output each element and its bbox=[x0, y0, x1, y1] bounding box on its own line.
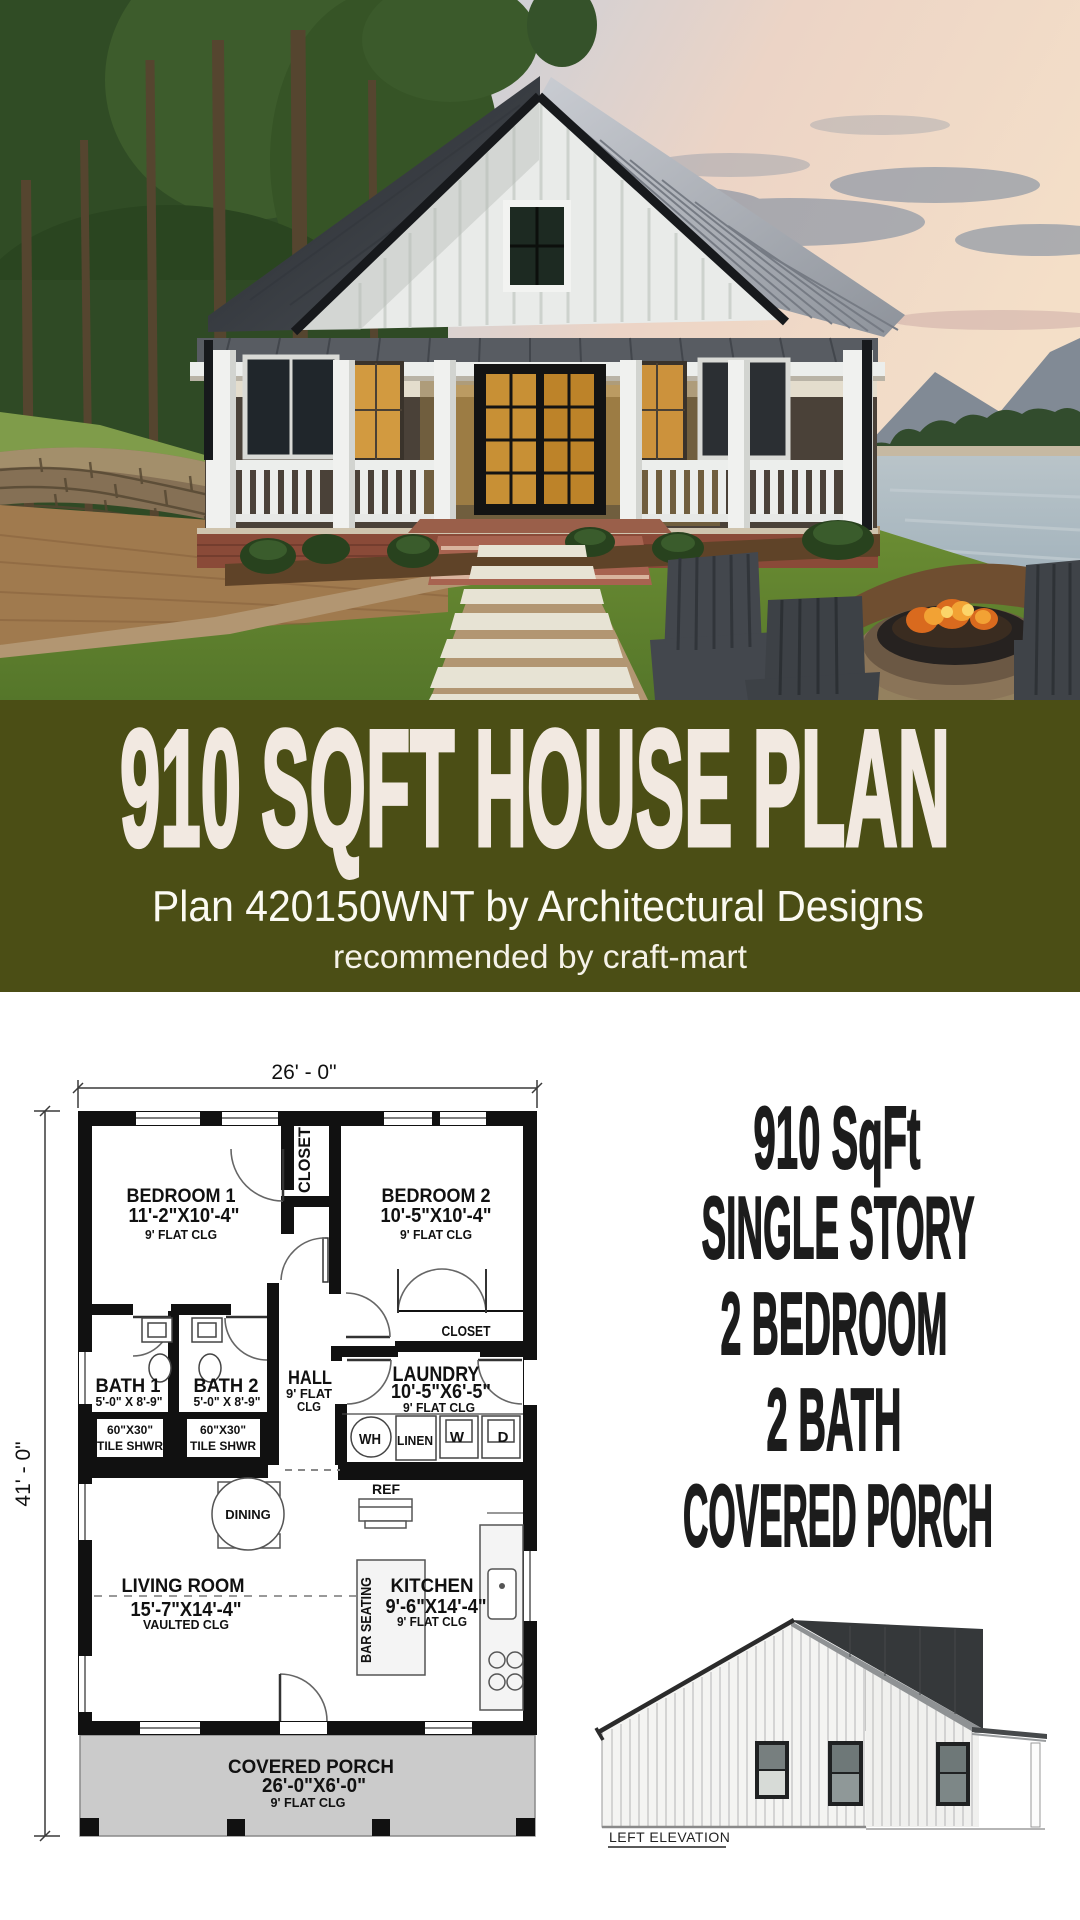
svg-text:KITCHEN: KITCHEN bbox=[391, 1575, 474, 1597]
svg-text:CLOSET: CLOSET bbox=[442, 1323, 491, 1340]
svg-text:41' - 0": 41' - 0" bbox=[12, 1441, 35, 1506]
svg-text:recommended by craft-mart: recommended by craft-mart bbox=[333, 938, 747, 975]
svg-text:60"X30": 60"X30" bbox=[200, 1423, 246, 1437]
svg-text:9' FLAT CLG: 9' FLAT CLG bbox=[145, 1227, 217, 1242]
svg-text:26' - 0": 26' - 0" bbox=[271, 1061, 336, 1084]
svg-text:SINGLE STORY: SINGLE STORY bbox=[702, 1178, 975, 1277]
svg-text:BAR SEATING: BAR SEATING bbox=[358, 1577, 375, 1663]
svg-text:11'-2"X10'-4": 11'-2"X10'-4" bbox=[129, 1205, 240, 1227]
svg-text:26'-0"X6'-0": 26'-0"X6'-0" bbox=[262, 1774, 366, 1797]
svg-text:BEDROOM 2: BEDROOM 2 bbox=[382, 1186, 491, 1207]
svg-text:2 BEDROOM: 2 BEDROOM bbox=[721, 1274, 948, 1373]
svg-text:LINEN: LINEN bbox=[397, 1433, 433, 1448]
svg-text:COVERED PORCH: COVERED PORCH bbox=[683, 1466, 993, 1565]
svg-text:W: W bbox=[450, 1429, 465, 1446]
svg-text:5'-0" X 8'-9": 5'-0" X 8'-9" bbox=[96, 1394, 163, 1409]
svg-text:BEDROOM 1: BEDROOM 1 bbox=[127, 1186, 236, 1207]
svg-text:10'-5"X10'-4": 10'-5"X10'-4" bbox=[381, 1205, 492, 1227]
svg-text:9' FLAT CLG: 9' FLAT CLG bbox=[403, 1400, 475, 1415]
svg-text:WH: WH bbox=[359, 1431, 381, 1448]
svg-text:5'-0" X 8'-9": 5'-0" X 8'-9" bbox=[194, 1394, 261, 1409]
svg-text:9' FLAT CLG: 9' FLAT CLG bbox=[397, 1614, 467, 1629]
svg-text:LIVING ROOM: LIVING ROOM bbox=[122, 1575, 245, 1597]
svg-text:D: D bbox=[498, 1429, 509, 1446]
svg-text:Plan 420150WNT by Architectura: Plan 420150WNT by Architectural Designs bbox=[152, 882, 924, 931]
svg-text:9' FLAT CLG: 9' FLAT CLG bbox=[271, 1795, 346, 1810]
svg-text:LEFT ELEVATION: LEFT ELEVATION bbox=[609, 1829, 730, 1845]
svg-text:TILE SHWR: TILE SHWR bbox=[190, 1439, 256, 1453]
svg-text:2 BATH: 2 BATH bbox=[767, 1370, 902, 1469]
svg-text:REF: REF bbox=[372, 1481, 400, 1497]
svg-text:DINING: DINING bbox=[225, 1507, 271, 1522]
svg-text:9' FLAT CLG: 9' FLAT CLG bbox=[400, 1227, 472, 1242]
svg-text:VAULTED CLG: VAULTED CLG bbox=[143, 1617, 229, 1632]
svg-text:910 SQFT HOUSE PLAN: 910 SQFT HOUSE PLAN bbox=[120, 696, 950, 880]
svg-text:CLG: CLG bbox=[297, 1399, 321, 1414]
svg-text:CLOSET: CLOSET bbox=[295, 1126, 314, 1193]
svg-text:910 SqFt: 910 SqFt bbox=[754, 1088, 921, 1187]
svg-text:TILE SHWR: TILE SHWR bbox=[97, 1439, 163, 1453]
svg-text:60"X30": 60"X30" bbox=[107, 1423, 153, 1437]
